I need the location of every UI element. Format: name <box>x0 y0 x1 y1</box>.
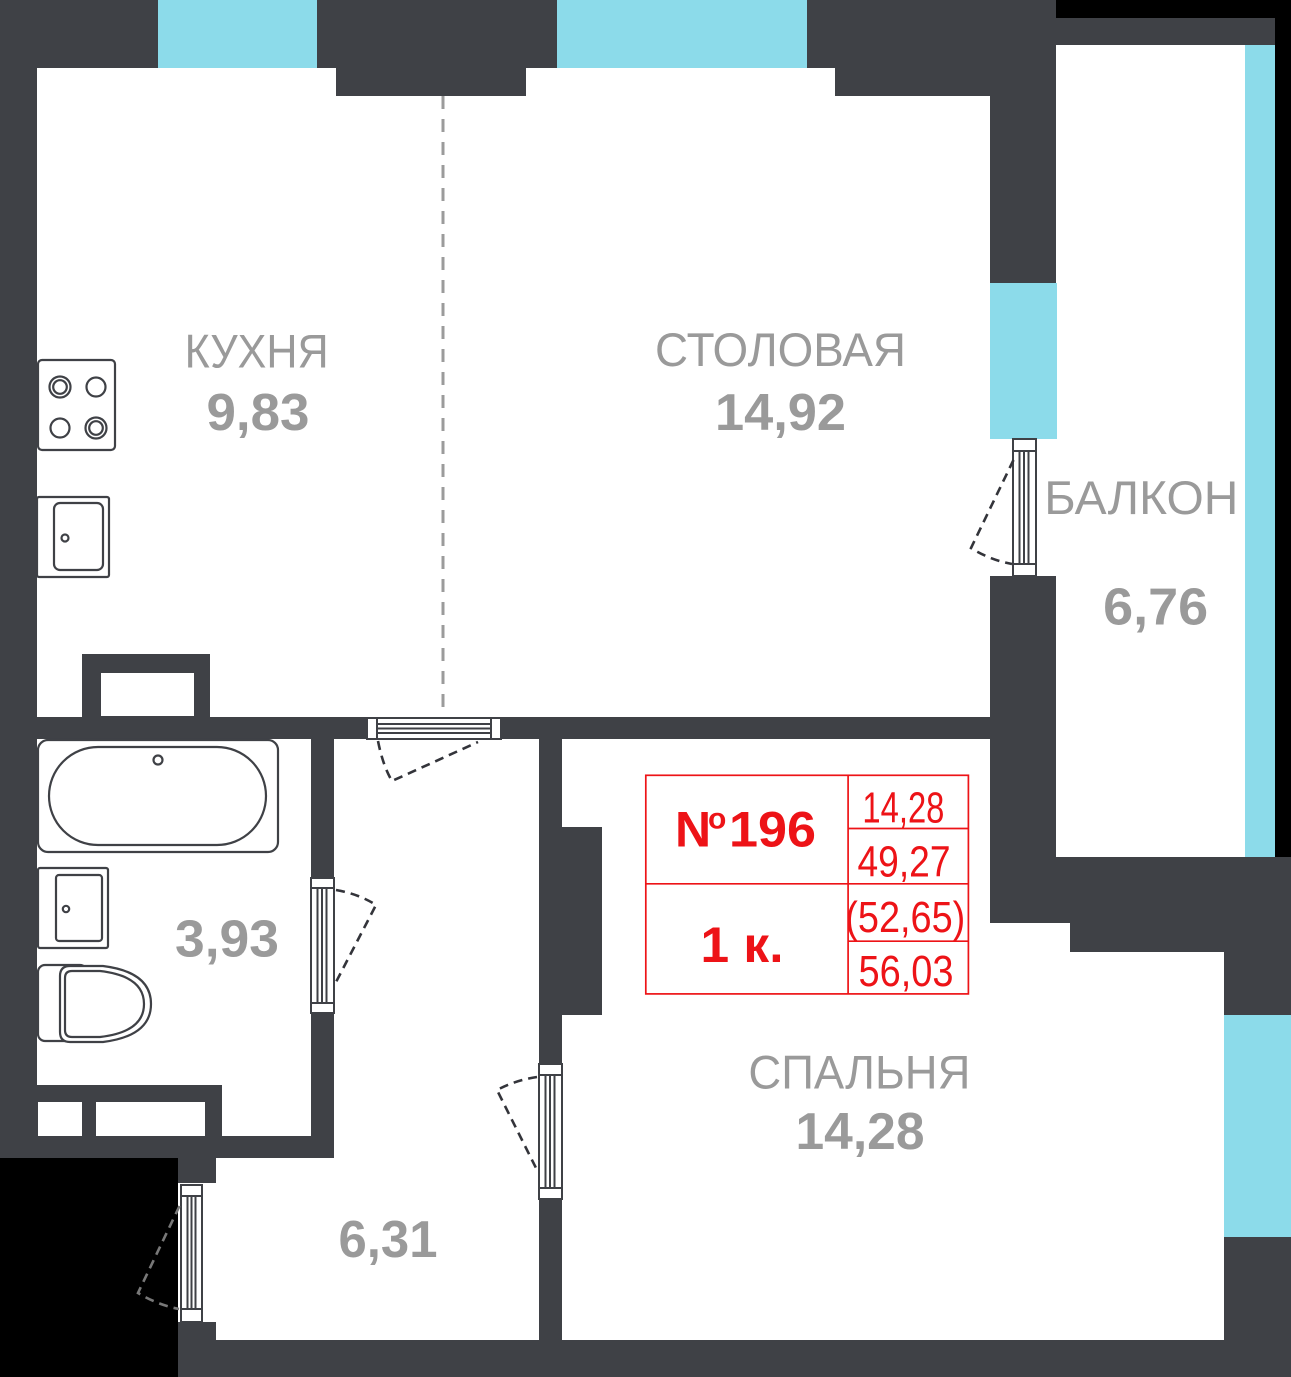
svg-text:6,76: 6,76 <box>1103 578 1208 636</box>
svg-text:56,03: 56,03 <box>859 947 954 996</box>
svg-text:14,92: 14,92 <box>715 384 846 442</box>
svg-text:КУХНЯ: КУХНЯ <box>185 324 329 377</box>
svg-text:14,28: 14,28 <box>862 784 944 833</box>
svg-text:БАЛКОН: БАЛКОН <box>1044 471 1238 524</box>
svg-text:(52,65): (52,65) <box>845 893 965 942</box>
svg-text:6,31: 6,31 <box>339 1211 438 1269</box>
svg-text:1 к.: 1 к. <box>701 917 784 973</box>
svg-text:49,27: 49,27 <box>858 838 951 887</box>
svg-text:3,93: 3,93 <box>175 910 279 968</box>
svg-text:СПАЛЬНЯ: СПАЛЬНЯ <box>748 1045 970 1098</box>
svg-text:No196: No196 <box>675 801 816 857</box>
svg-text:14,28: 14,28 <box>796 1103 925 1161</box>
svg-text:СТОЛОВАЯ: СТОЛОВАЯ <box>655 323 906 376</box>
svg-text:9,83: 9,83 <box>207 384 310 442</box>
